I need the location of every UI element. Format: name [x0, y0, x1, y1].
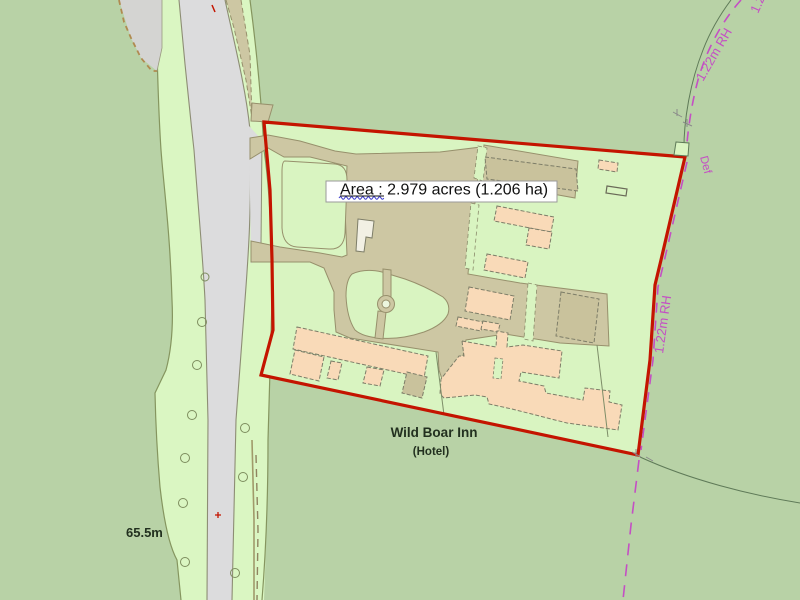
svg-text:Wild Boar Inn: Wild Boar Inn	[391, 425, 478, 440]
svg-text:(Hotel): (Hotel)	[413, 446, 450, 458]
svg-text:65.5m: 65.5m	[126, 525, 163, 540]
